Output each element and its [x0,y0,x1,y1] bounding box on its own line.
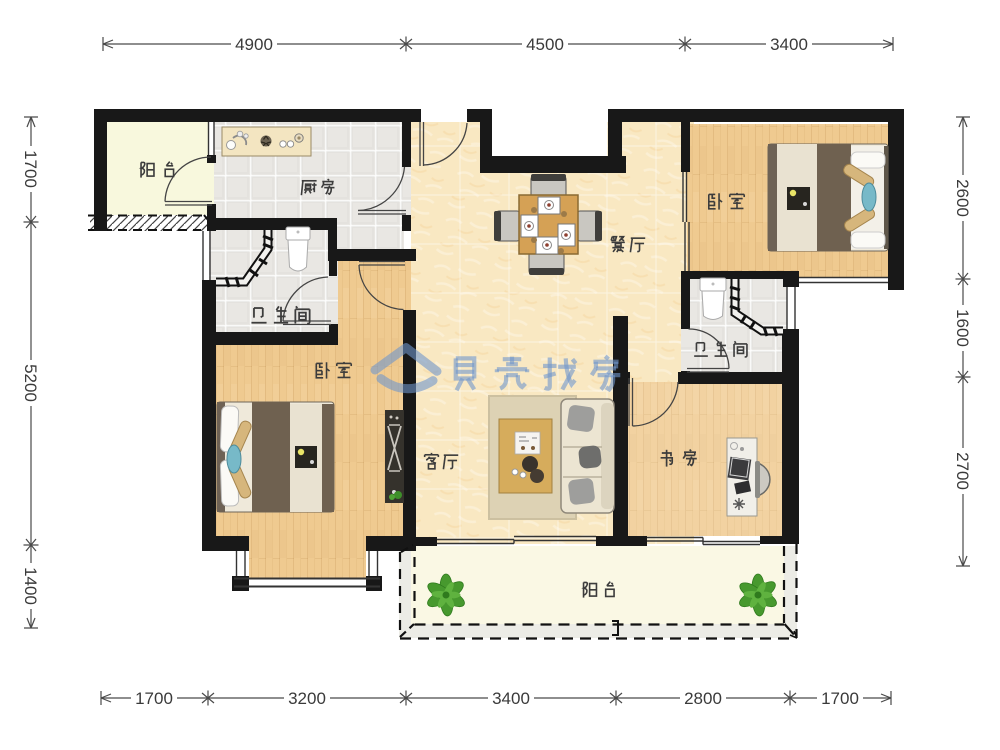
svg-text:4500: 4500 [526,35,564,54]
svg-text:1400: 1400 [21,567,40,605]
svg-text:4900: 4900 [235,35,273,54]
svg-text:1600: 1600 [953,309,972,347]
svg-text:2800: 2800 [684,689,722,708]
svg-text:1700: 1700 [135,689,173,708]
svg-text:1700: 1700 [821,689,859,708]
svg-text:3400: 3400 [492,689,530,708]
svg-text:3200: 3200 [288,689,326,708]
svg-text:3400: 3400 [770,35,808,54]
svg-text:2600: 2600 [953,179,972,217]
svg-text:5200: 5200 [21,364,40,402]
svg-text:2700: 2700 [953,452,972,490]
svg-text:1700: 1700 [21,150,40,188]
